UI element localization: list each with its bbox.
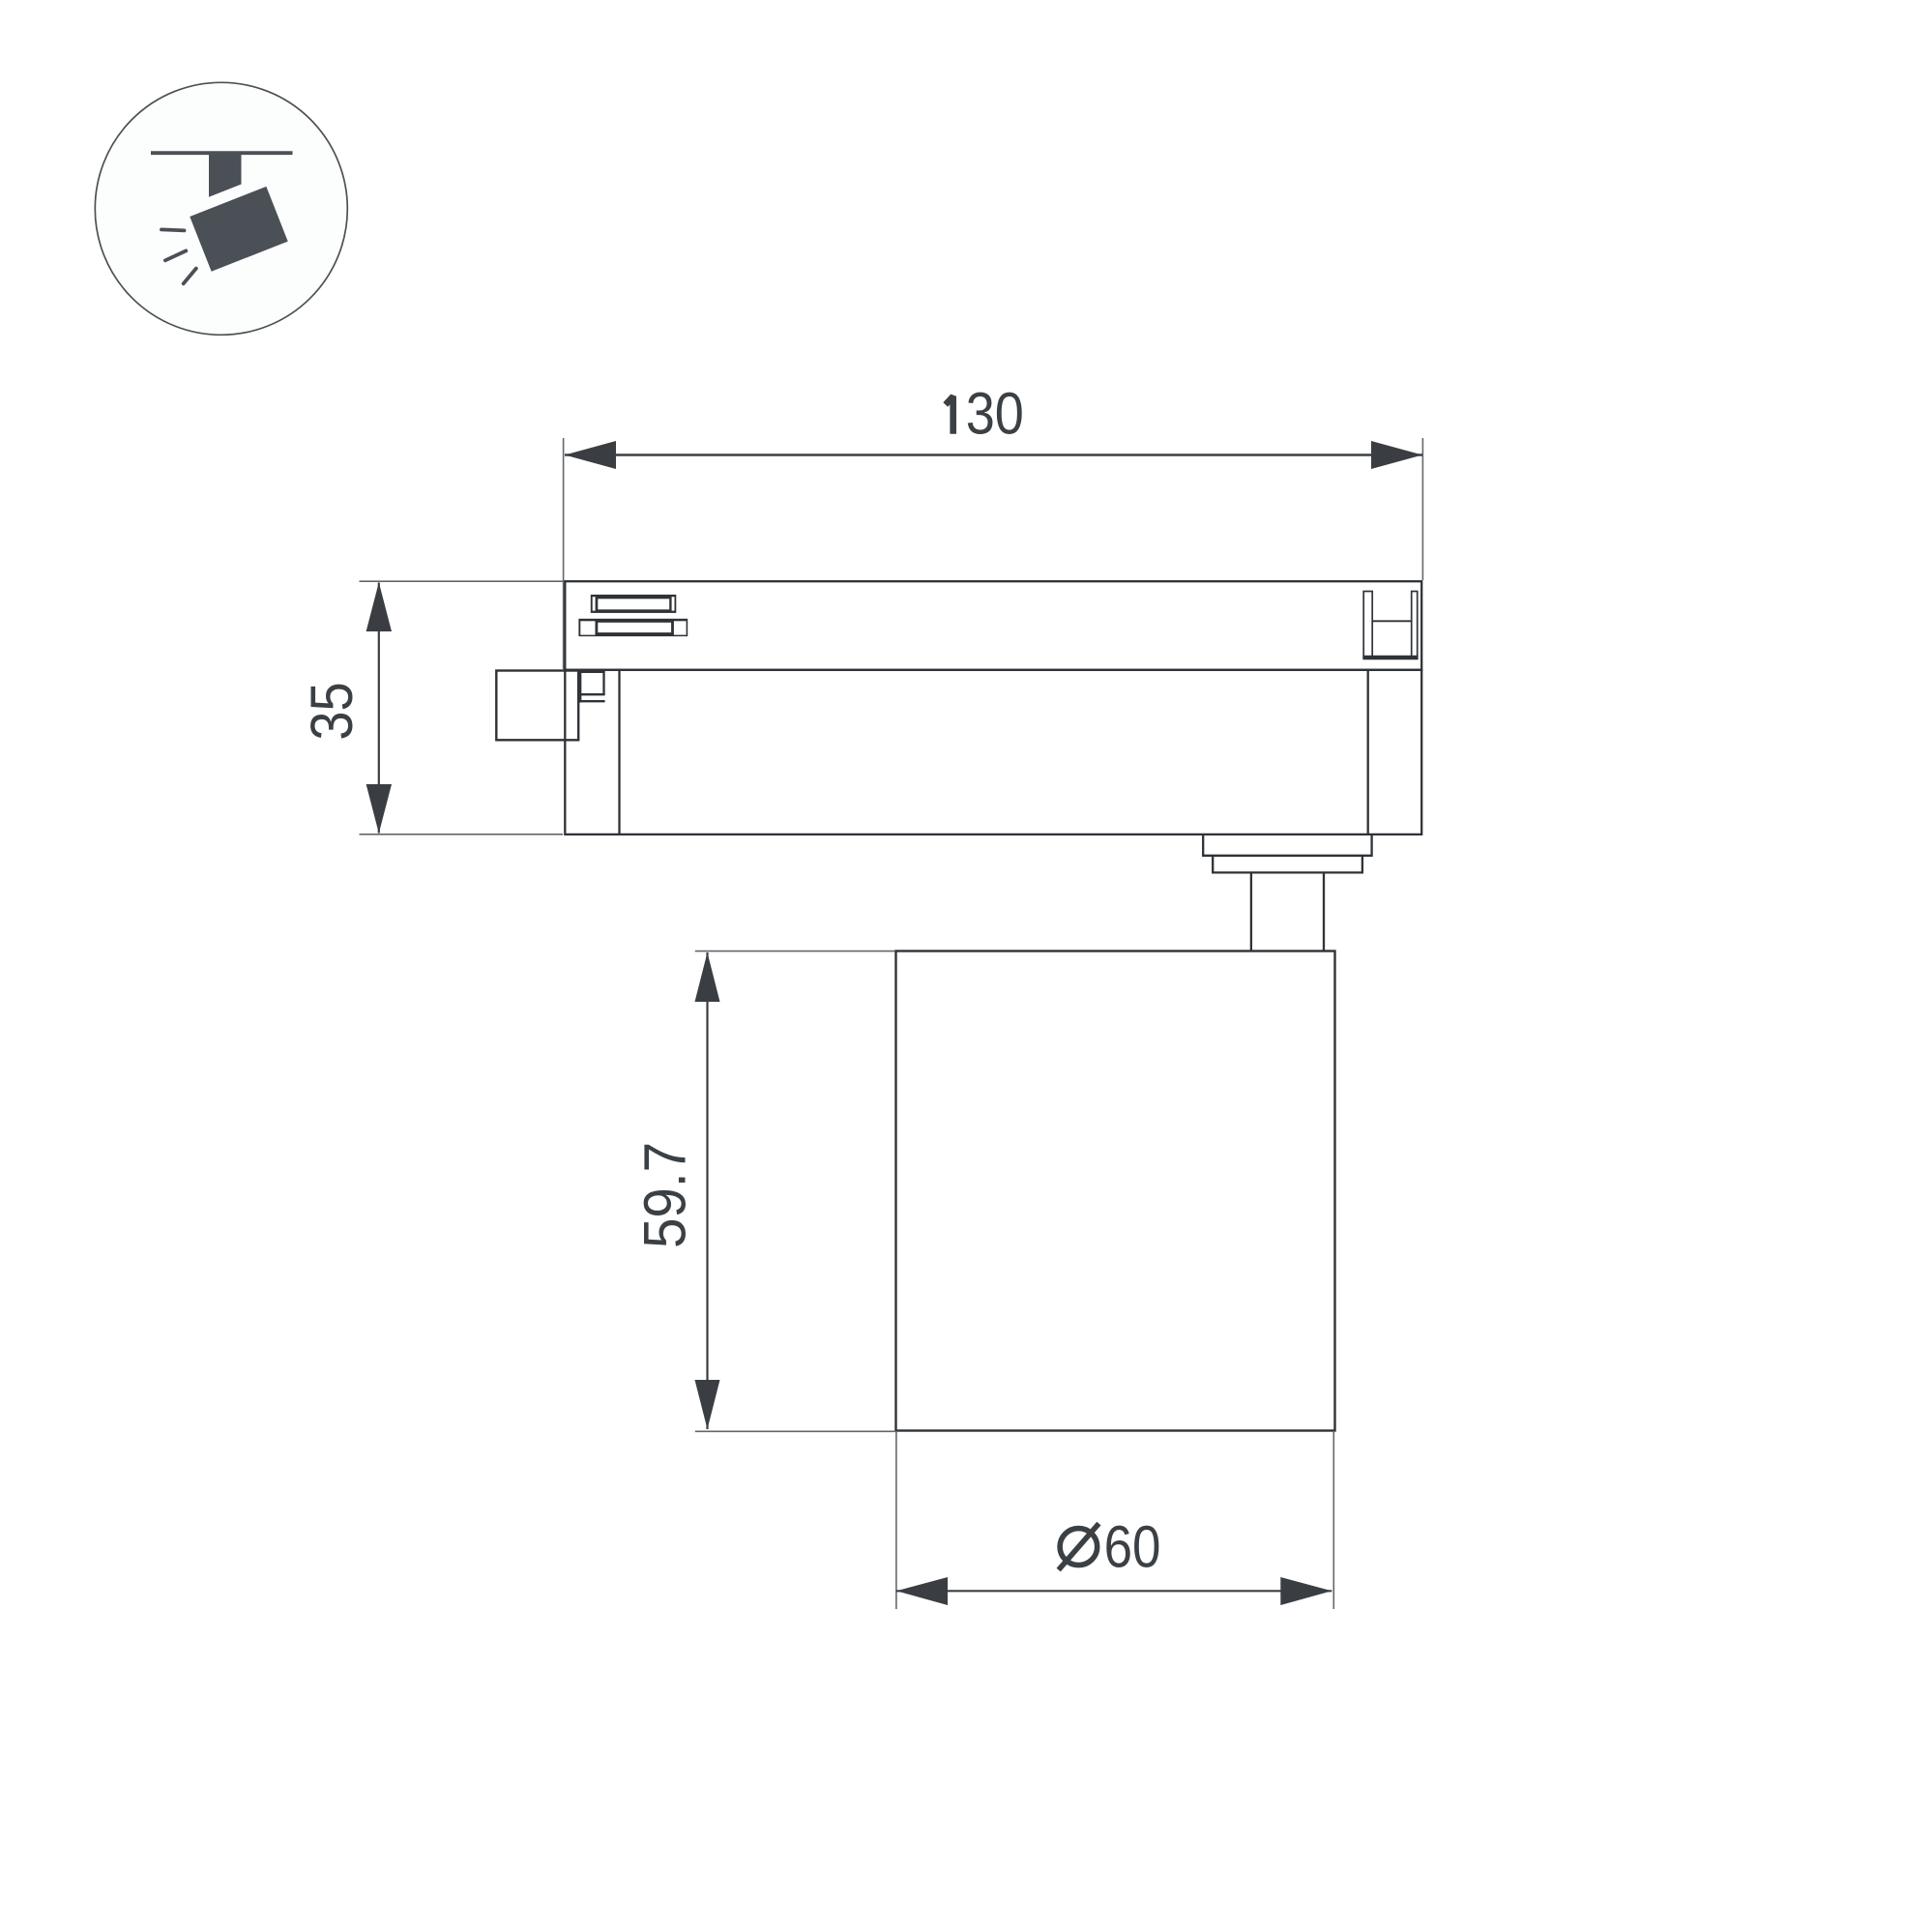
svg-text:59.7: 59.7 — [631, 1142, 698, 1248]
svg-text:60: 60 — [1104, 1514, 1161, 1581]
svg-text:30: 30 — [966, 382, 1024, 448]
svg-text:35: 35 — [300, 682, 366, 740]
